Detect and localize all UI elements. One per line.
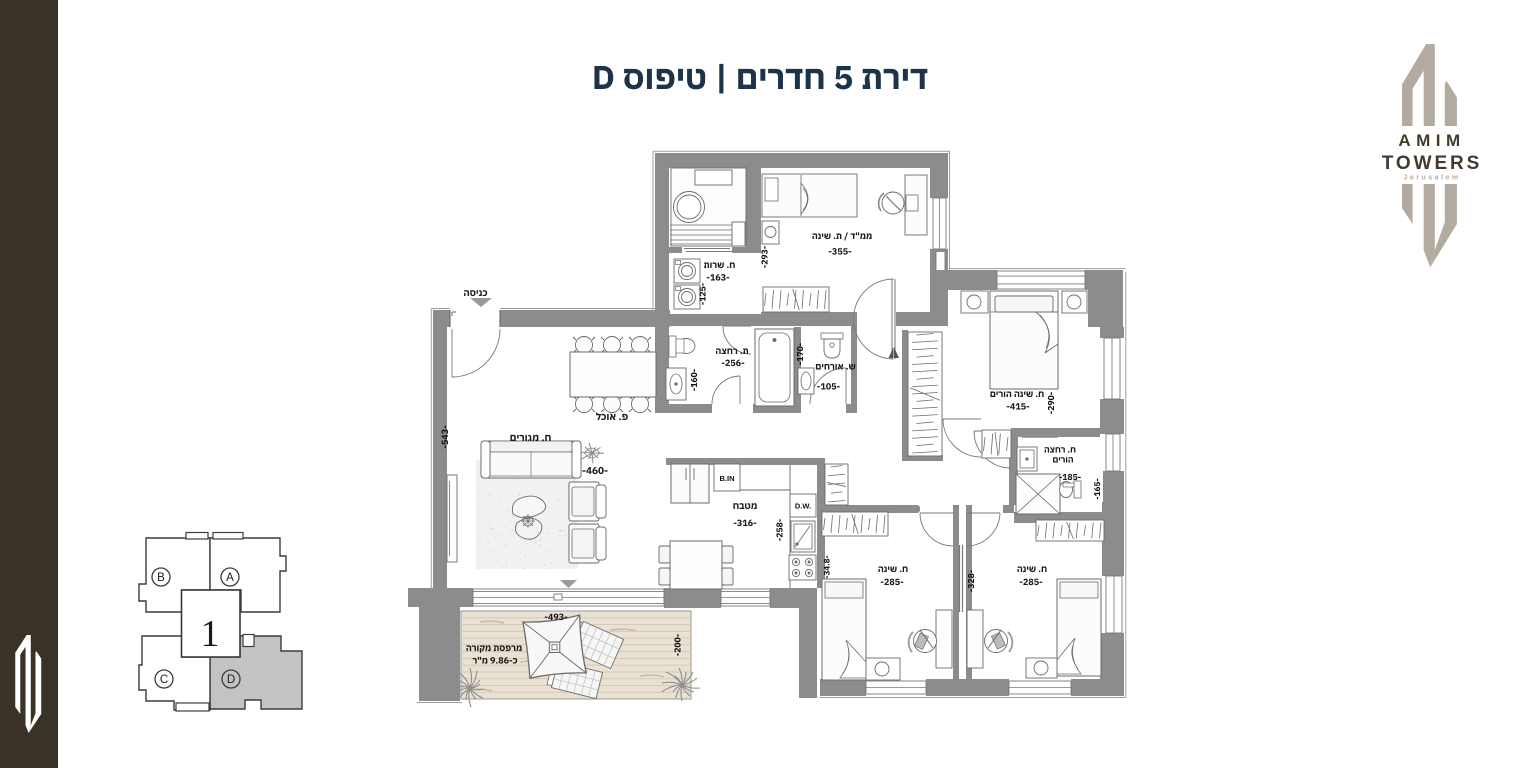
svg-text:C: C	[160, 674, 168, 686]
svg-text:TOWERS: TOWERS	[1382, 153, 1482, 174]
svg-text:1: 1	[201, 613, 220, 655]
svg-text:B.IN: B.IN	[720, 474, 735, 483]
svg-text:A: A	[226, 572, 234, 584]
svg-text:Jerusalem: Jerusalem	[1403, 175, 1460, 182]
svg-text:D: D	[227, 674, 235, 686]
svg-text:B: B	[157, 572, 165, 584]
svg-text:AMIM: AMIM	[1398, 131, 1465, 150]
svg-text:D.W.: D.W.	[795, 502, 811, 511]
